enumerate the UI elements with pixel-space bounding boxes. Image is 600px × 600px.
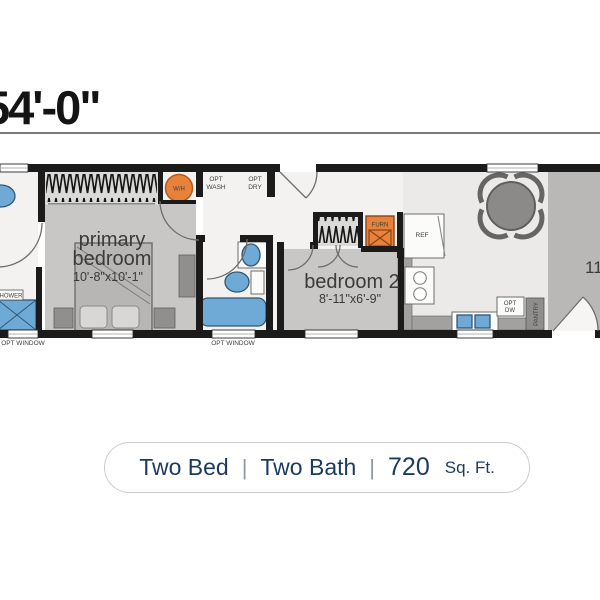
pillow	[80, 306, 107, 328]
opt-window-label: OPT WINDOW	[211, 340, 255, 347]
bedroom2-dims: 8'-11"x6'-9"	[319, 292, 381, 306]
opt-dry-label-2: DRY	[248, 184, 262, 191]
bedroom2-name: bedroom 2	[304, 271, 400, 293]
refrigerator-label: REF	[416, 232, 429, 239]
sink-bowl-icon	[457, 315, 472, 328]
floor-plan: SHOWER REF OPT DW	[0, 0, 600, 600]
closet-shelf-line	[48, 203, 155, 205]
separator: |	[369, 455, 375, 481]
sink-bowl-icon	[475, 315, 490, 328]
living-room-dim-partial: 11	[585, 258, 600, 277]
opt-dry-label-1: OPT	[248, 176, 261, 183]
primary-bedroom-dims: 10'-8"x10'-1"	[73, 270, 143, 284]
floorplan-page: 54'-0"	[0, 0, 600, 600]
table-icon	[487, 182, 535, 230]
counter	[496, 318, 527, 330]
pantry-label: PANTRY	[534, 302, 540, 326]
dresser	[179, 255, 195, 297]
sqft-unit: Sq. Ft.	[445, 458, 495, 478]
toilet-tank	[251, 271, 264, 294]
beds-summary: Two Bed	[139, 454, 229, 481]
furnace: FURN	[366, 216, 394, 249]
opt-window-label: OPT WINDOW	[1, 340, 45, 347]
nightstand	[54, 308, 73, 328]
primary-closet-hanging-icon	[46, 174, 157, 202]
separator: |	[242, 455, 248, 481]
pillow	[112, 306, 139, 328]
counter	[412, 316, 454, 330]
bathtub-icon	[200, 298, 266, 326]
sink-icon	[242, 244, 260, 266]
opt-wash-label-1: OPT	[209, 176, 222, 183]
shower-label: SHOWER	[0, 294, 23, 300]
burner-icon	[414, 288, 427, 301]
furnace-icon	[366, 216, 394, 249]
sqft-value: 720	[388, 453, 430, 482]
water-heater: W/H	[166, 175, 193, 202]
baths-summary: Two Bath	[260, 454, 356, 481]
summary-badge: Two Bed | Two Bath | 720 Sq. Ft.	[104, 442, 530, 493]
opt-dw-label-1: OPT	[504, 301, 517, 307]
furnace-label: FURN	[372, 223, 389, 229]
nightstand	[154, 308, 175, 328]
primary-bedroom-name-2: bedroom	[73, 248, 152, 270]
water-heater-label: W/H	[173, 187, 185, 193]
opt-dw-label-2: DW	[505, 308, 515, 314]
opt-wash-label-2: WASH	[206, 184, 226, 191]
burner-icon	[414, 272, 427, 285]
bedroom2-closet-hanging-icon	[318, 217, 358, 243]
toilet-icon	[225, 272, 249, 292]
